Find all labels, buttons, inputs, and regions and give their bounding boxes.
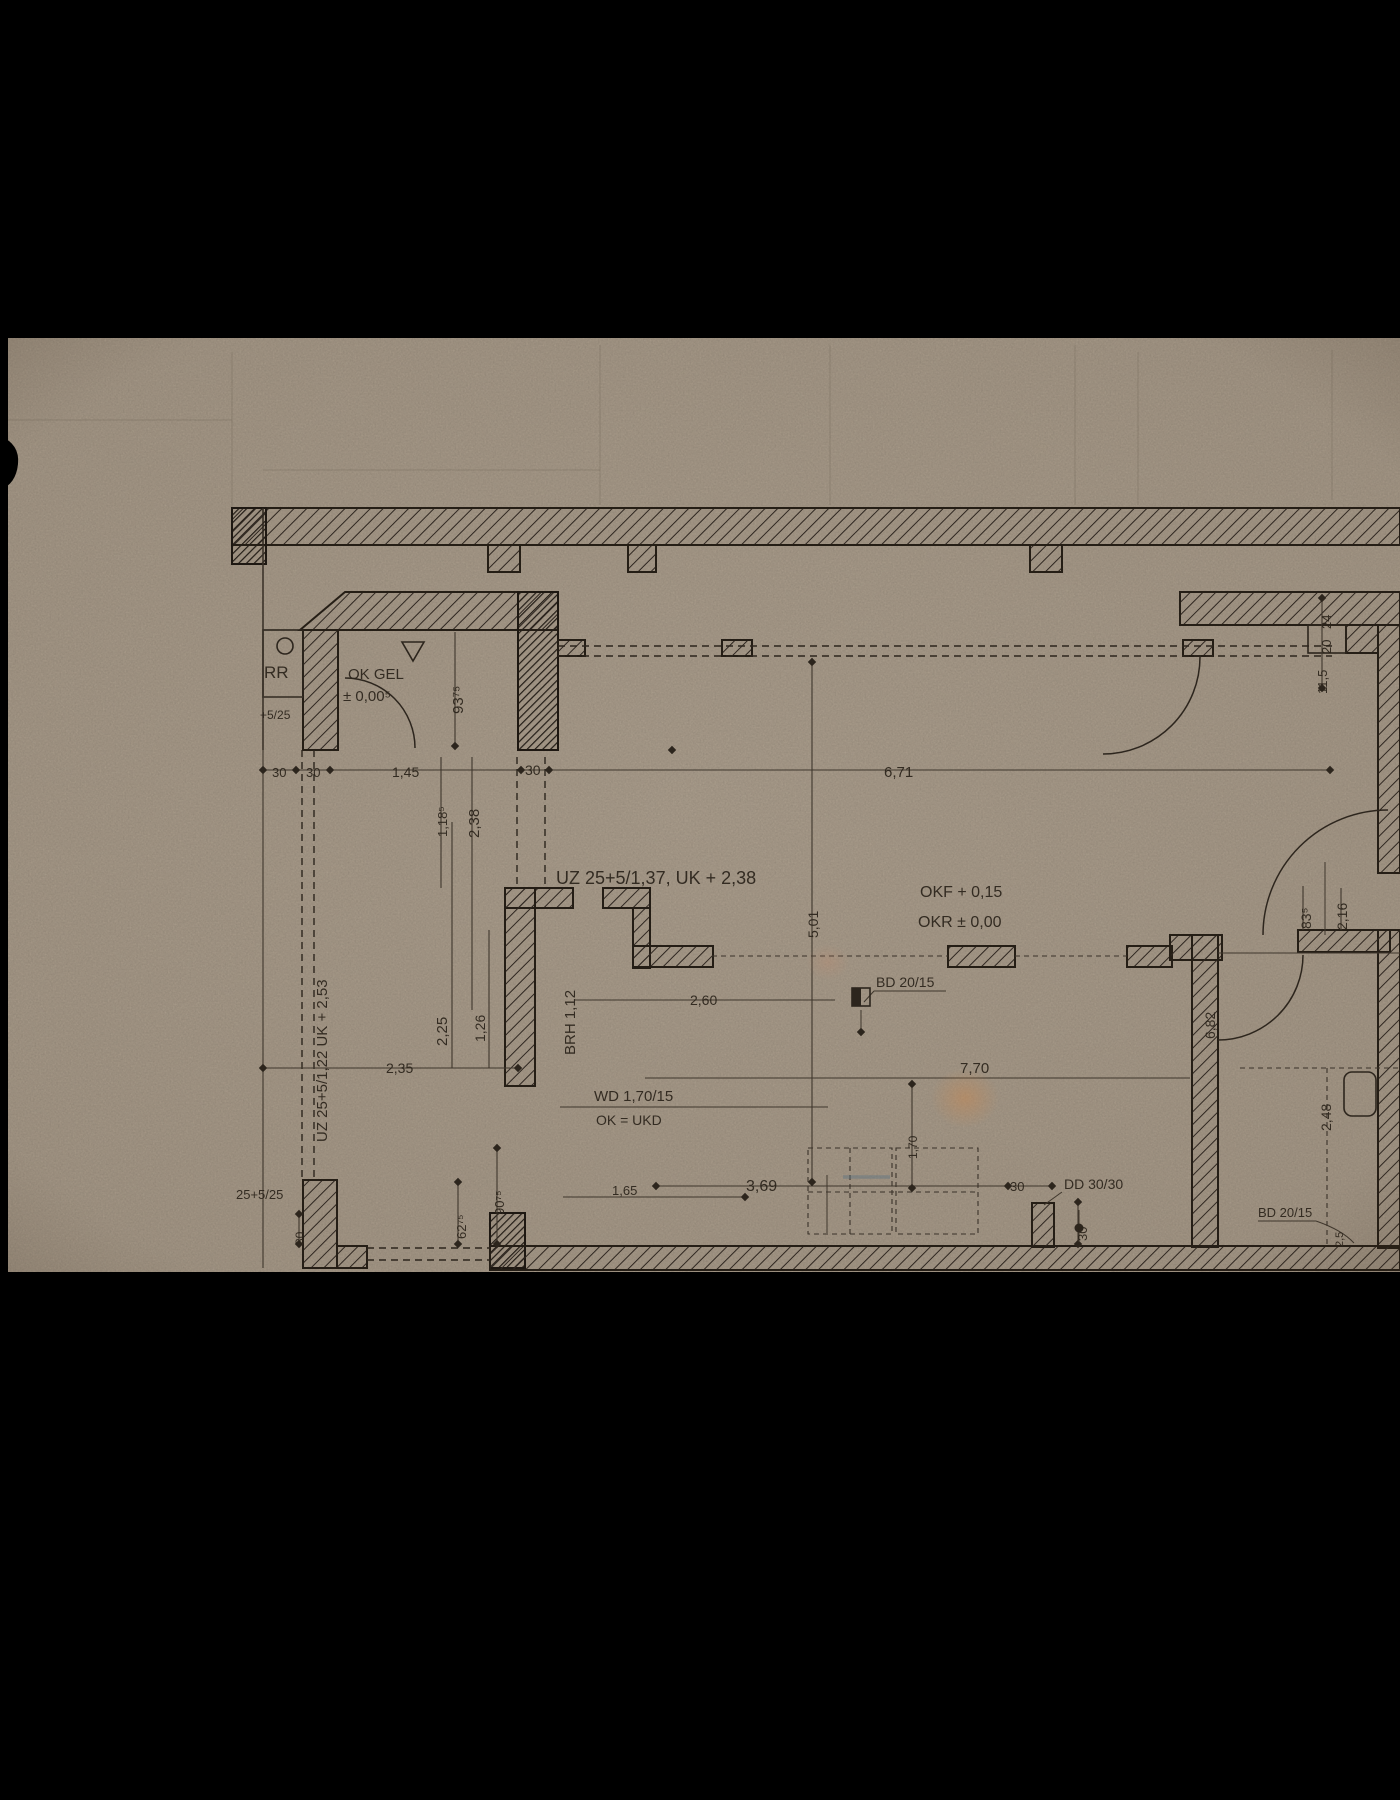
floorplan-scan: RROK GEL± 0,00⁵93⁷⁵+5/2530301,45306,711,… [0,0,1400,1800]
scan-vignette [0,338,1400,1272]
